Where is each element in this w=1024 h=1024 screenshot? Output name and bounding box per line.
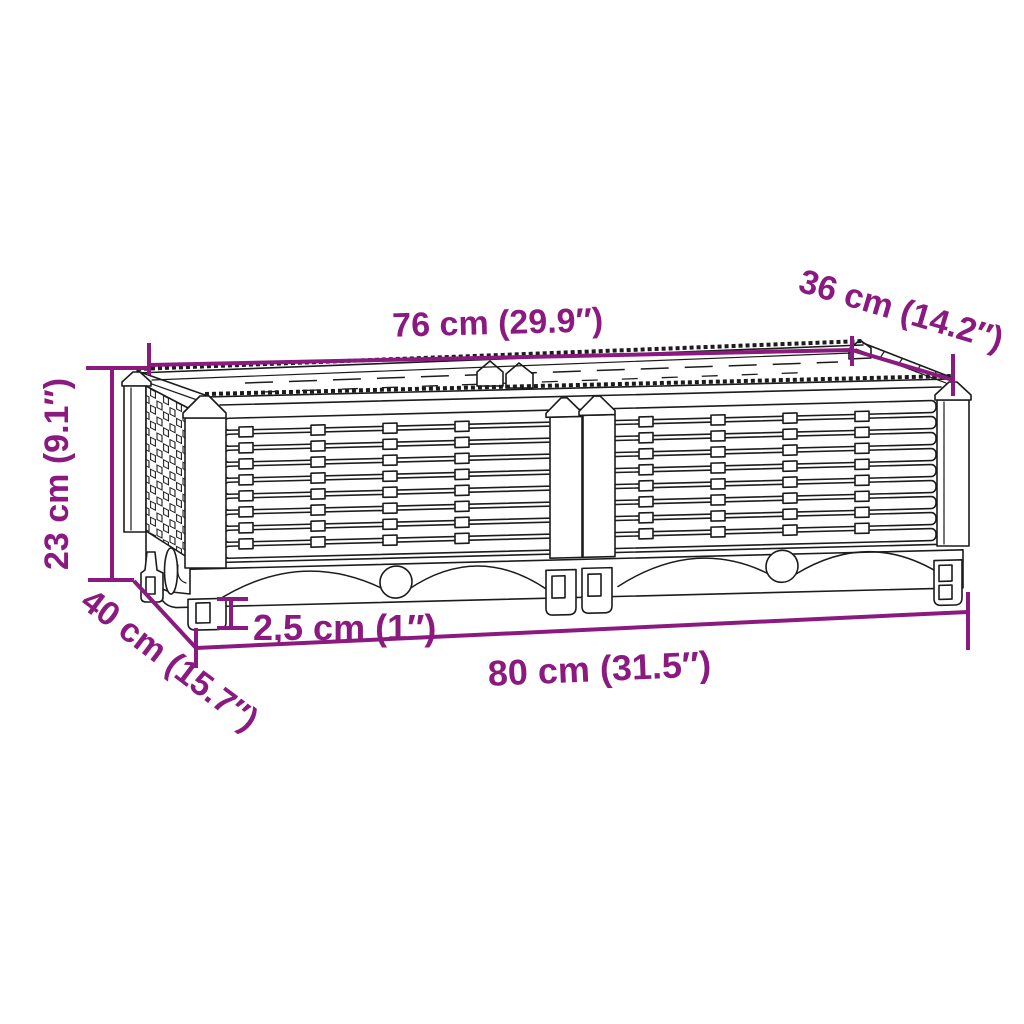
ground-peg xyxy=(165,548,178,594)
dimension-label-height: 23 cm (9.1″) xyxy=(38,378,76,570)
front-right-post xyxy=(935,382,971,546)
diagram-canvas: 76 cm (29.9″) 36 cm (14.2″) 23 cm (9.1″)… xyxy=(0,0,1024,1024)
middle-joint-posts xyxy=(546,396,615,559)
base-ornament-circle xyxy=(380,566,412,599)
dimension-label-top-width: 76 cm (29.9″) xyxy=(392,301,604,345)
dimension-label-bottom-width: 80 cm (31.5″) xyxy=(487,643,712,694)
front-rim-serrated-edge xyxy=(205,376,951,394)
right-rim-edge xyxy=(863,343,953,378)
dimension-line xyxy=(852,350,953,380)
base-ornament-circle xyxy=(766,550,798,583)
product-dimension-diagram: 76 cm (29.9″) 36 cm (14.2″) 23 cm (9.1″)… xyxy=(0,0,1024,1024)
front-assembly xyxy=(157,387,963,631)
front-left-post xyxy=(183,396,226,568)
planter-drawing xyxy=(122,340,971,631)
dim-top-width: 76 cm (29.9″) xyxy=(149,301,852,375)
